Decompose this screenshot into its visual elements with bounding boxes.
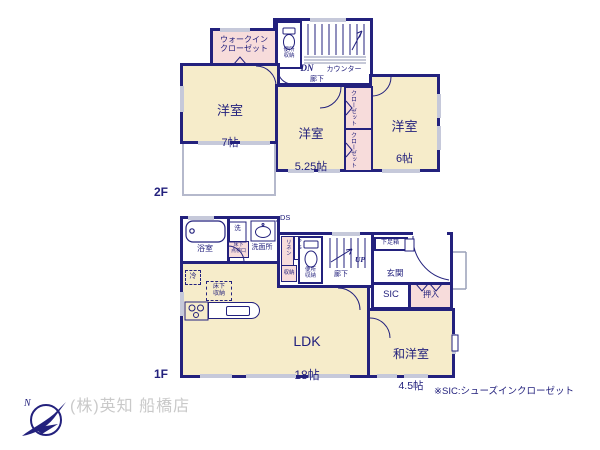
closet-2-label: クローゼット: [348, 132, 356, 170]
closet-1-label: クローゼット: [348, 90, 356, 128]
svg-text:N: N: [23, 398, 32, 409]
oshiire-label: 押入: [410, 290, 452, 299]
company-name: (株)英知 船橋店: [70, 398, 290, 417]
room-size: 5.25帖: [275, 161, 347, 174]
ps-label: PS: [296, 239, 303, 259]
room-size: 7帖: [180, 137, 280, 150]
stairs-icon-2f: [308, 24, 364, 55]
sic-label: SIC: [371, 289, 411, 300]
counter-label: カウンター: [318, 66, 370, 74]
porch-step-lines: [453, 252, 466, 289]
bedroom-6-label: 洋室 6帖: [369, 100, 440, 185]
hall-1f-label: 廊下: [328, 271, 354, 279]
shoebox-label: 下足箱: [374, 240, 406, 247]
bath-label: 浴室: [180, 244, 230, 253]
walk-in-closet-label: ウォークイン クローゼット: [210, 35, 278, 54]
ds-label: DS: [280, 214, 298, 223]
fridge-label: 冷: [185, 273, 201, 281]
floor1-label: 1F: [148, 367, 174, 381]
bathtub-icon: [186, 221, 225, 242]
hall-2f-label: 廊下: [302, 76, 332, 84]
wayoshitsu-label: 和洋室 4.5帖: [370, 328, 452, 411]
shoebox-door-icon: [405, 239, 414, 251]
room-name: 和洋室: [370, 347, 452, 361]
toilet-2f-label: 便所 収納: [276, 47, 302, 60]
ldk-label: LDK 18帖: [262, 314, 352, 401]
stove-icon: [185, 302, 208, 320]
room-name: LDK: [262, 333, 352, 350]
underfloor-hatch-label: 床下 点検口: [228, 243, 249, 255]
room-size: 6帖: [369, 153, 440, 166]
storage-label: 収納: [281, 270, 297, 276]
sic-note: ※SIC:シューズインクローゼット: [374, 386, 574, 397]
bedroom-7-label: 洋室 7帖: [180, 84, 280, 169]
washroom-label: 洗面所: [245, 244, 279, 252]
room-size: 18帖: [262, 368, 352, 382]
room-name: 洋室: [369, 119, 440, 134]
north-compass-logo: N: [14, 388, 72, 446]
dn-label: DN: [296, 63, 318, 74]
toilet-icon-1f: [304, 241, 318, 267]
floor2-label: 2F: [148, 185, 174, 199]
sink-icon: [251, 221, 275, 241]
linen-label: リネン: [284, 239, 291, 265]
underfloor-storage-label: 床下 収納: [206, 284, 232, 298]
floorplan-page: ウォークイン クローゼット 便所 収納 洋室 7帖 洋室 5.25帖 洋室 6帖…: [0, 0, 600, 450]
bedroom-525-label: 洋室 5.25帖: [275, 108, 347, 192]
wayoshitsu-door-icon: [452, 335, 458, 351]
entrance-label: 玄関: [379, 268, 411, 278]
room-name: 洋室: [275, 127, 347, 142]
room-name: 洋室: [180, 103, 280, 118]
toilet-1f-label: 便所 収納: [298, 267, 323, 280]
up-label: UP: [350, 256, 370, 265]
washer-label: 洗: [229, 225, 246, 233]
